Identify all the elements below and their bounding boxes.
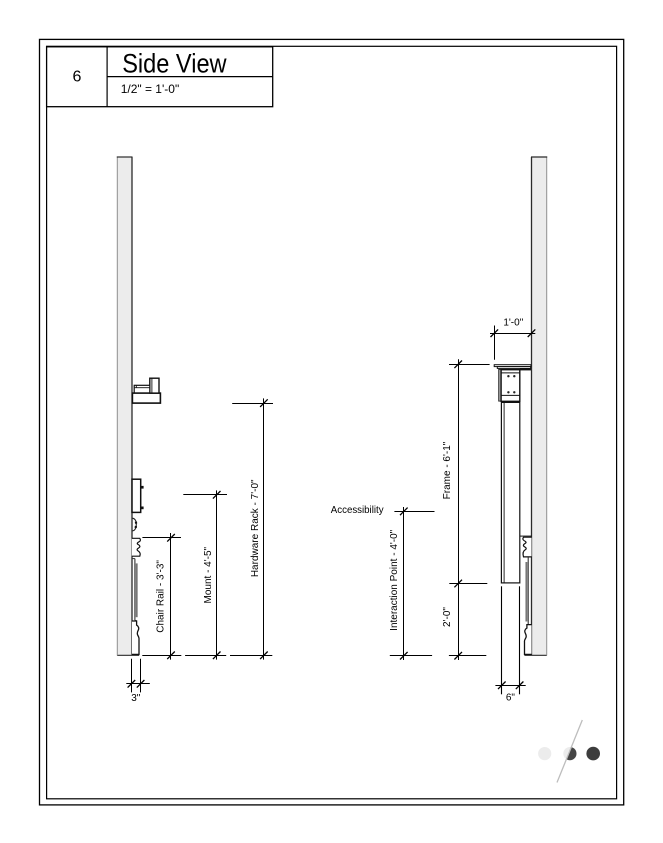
svg-text:6": 6" — [506, 693, 516, 704]
svg-text:Mount - 4'-5": Mount - 4'-5" — [203, 546, 214, 603]
svg-text:Frame - 6'-1": Frame - 6'-1" — [442, 441, 453, 499]
svg-text:1'-0": 1'-0" — [503, 318, 523, 329]
svg-text:6: 6 — [73, 69, 82, 86]
svg-text:Interaction Point - 4'-0": Interaction Point - 4'-0" — [389, 529, 400, 631]
svg-text:2'-0": 2'-0" — [442, 607, 453, 627]
svg-text:Side View: Side View — [122, 48, 227, 78]
svg-text:Accessibility: Accessibility — [331, 505, 384, 516]
svg-text:Hardware Rack - 7'-0": Hardware Rack - 7'-0" — [250, 479, 261, 577]
svg-text:Chair Rail - 3'-3": Chair Rail - 3'-3" — [155, 560, 166, 633]
svg-text:3": 3" — [131, 693, 141, 704]
svg-text:1/2" = 1'-0": 1/2" = 1'-0" — [121, 82, 180, 96]
